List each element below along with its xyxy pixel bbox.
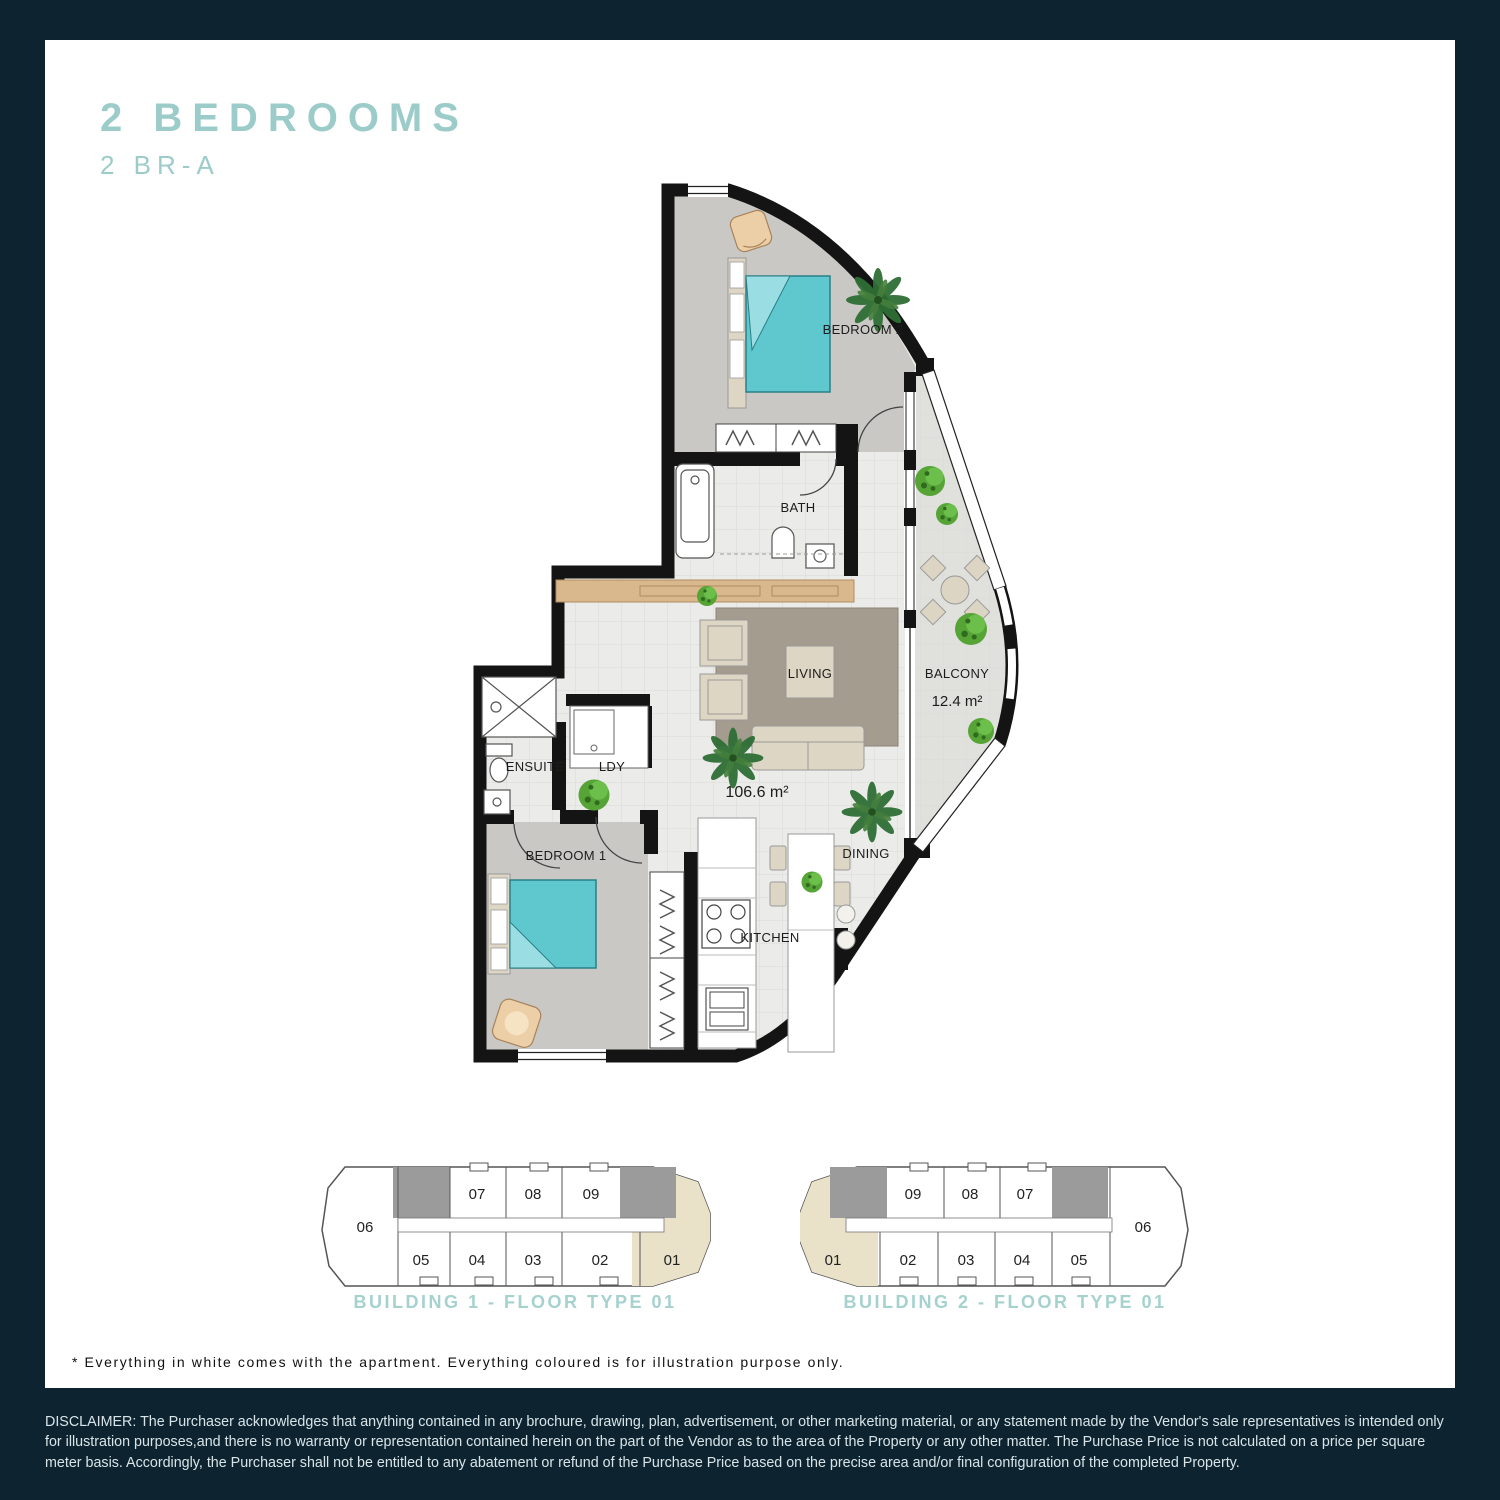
unit-01-label-highlighted: 01 [825, 1252, 842, 1269]
core-block [830, 1167, 887, 1218]
dining-label: DINING [842, 846, 889, 861]
floorplan-drawing: BEDROOM 2 BATH BALCONY 12.4 m² LIVING 10… [440, 170, 1040, 1090]
unit-03-label: 03 [525, 1252, 542, 1269]
disclaimer-text: DISCLAIMER: The Purchaser acknowledges t… [45, 1412, 1453, 1473]
bedroom2-bed [728, 258, 830, 408]
bedroom1-label: BEDROOM 1 [526, 848, 607, 863]
bedroom2-label: BEDROOM 2 [823, 322, 904, 337]
living-label: LIVING [788, 666, 832, 681]
building-2-keyplan: 01 09 08 07 02 03 04 05 06 [800, 1158, 1210, 1292]
page-frame: 2 BEDROOMS 2 BR-A [0, 0, 1500, 1500]
apartment-area-label: 106.6 m² [725, 784, 789, 801]
unit-08-label: 08 [525, 1186, 542, 1203]
plan-code: 2 BR-A [100, 152, 469, 178]
inclusions-note: * Everything in white comes with the apa… [72, 1354, 844, 1370]
unit-04-label: 04 [469, 1252, 486, 1269]
balcony-area-label: 12.4 m² [932, 693, 983, 710]
unit-09-label: 09 [583, 1186, 600, 1203]
unit-07-label: 07 [469, 1186, 486, 1203]
corridor [846, 1218, 1112, 1232]
unit-02-label: 02 [900, 1252, 917, 1269]
corridor [398, 1218, 664, 1232]
building-1-caption: BUILDING 1 - FLOOR TYPE 01 [310, 1292, 720, 1313]
unit-09-label: 09 [905, 1186, 922, 1203]
core-block [393, 1167, 450, 1218]
unit-02-label: 02 [592, 1252, 609, 1269]
core-block [1052, 1167, 1108, 1218]
unit-06-label: 06 [357, 1219, 374, 1236]
building-1-keyplan: 06 07 08 09 05 04 03 02 01 [310, 1158, 720, 1292]
building-2-caption: BUILDING 2 - FLOOR TYPE 01 [800, 1292, 1210, 1313]
core-block [620, 1167, 676, 1218]
kitchen-label: KITCHEN [740, 930, 799, 945]
unit-07-label: 07 [1017, 1186, 1034, 1203]
page-header: 2 BEDROOMS 2 BR-A [100, 98, 469, 178]
page-title: 2 BEDROOMS [100, 98, 469, 138]
ensuite-label: ENSUITE [506, 759, 564, 774]
unit-03-label: 03 [958, 1252, 975, 1269]
unit-01-label-highlighted: 01 [664, 1252, 681, 1269]
unit-06-label: 06 [1135, 1219, 1152, 1236]
laundry-label: LDY [599, 759, 625, 774]
unit-04-label: 04 [1014, 1252, 1031, 1269]
bedroom1-bed [488, 874, 596, 974]
balcony-label: BALCONY [925, 666, 989, 681]
brochure-page: 2 BEDROOMS 2 BR-A [45, 40, 1455, 1388]
unit-08-label: 08 [962, 1186, 979, 1203]
bath-label: BATH [781, 500, 816, 515]
unit-05-label: 05 [413, 1252, 430, 1269]
unit-05-label: 05 [1071, 1252, 1088, 1269]
